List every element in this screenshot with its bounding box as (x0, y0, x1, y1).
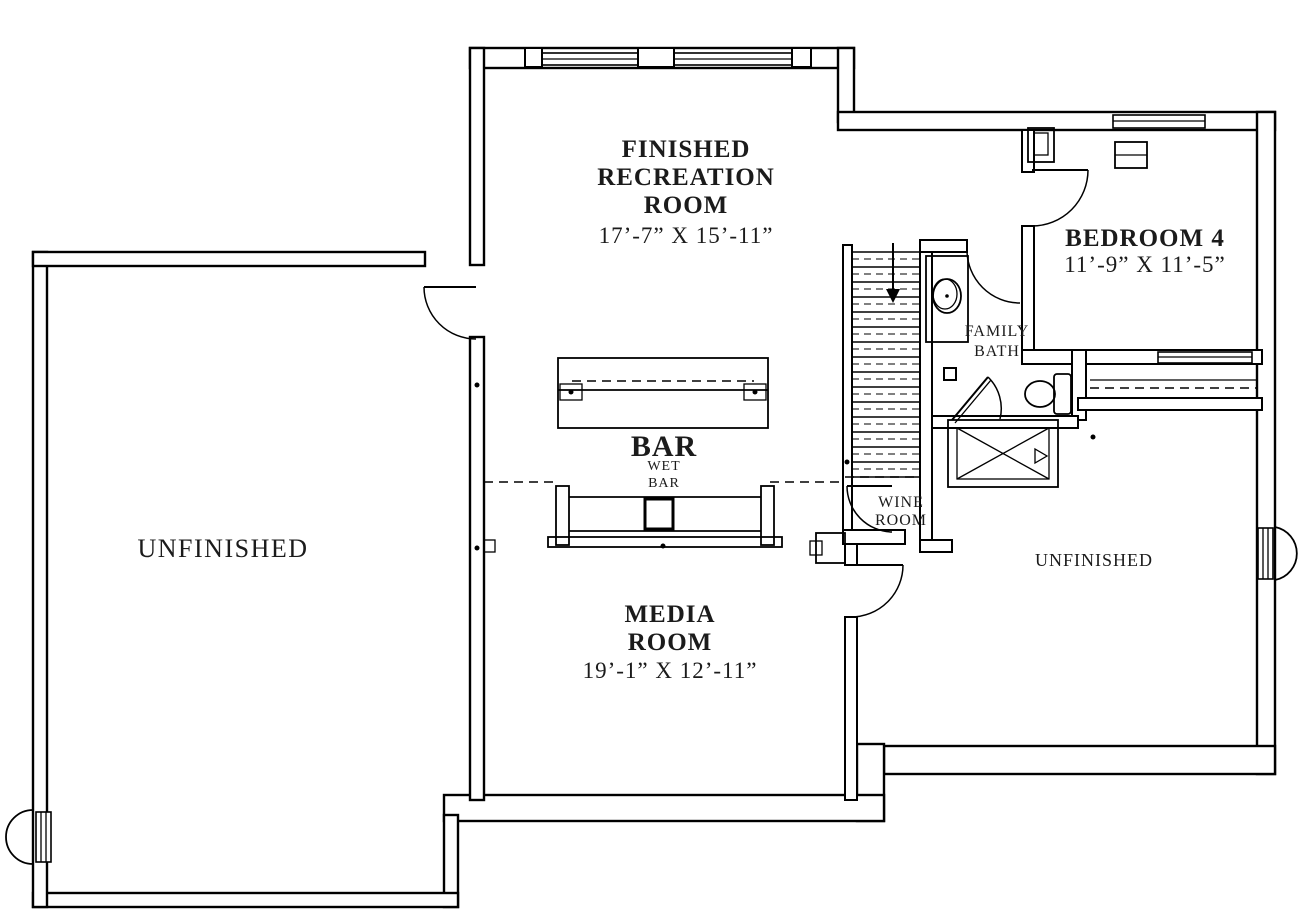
bedroom-bottom-window (1158, 352, 1252, 363)
wall-niche (816, 533, 845, 563)
unfinished-right-label: UNFINISHED (1035, 550, 1153, 570)
door-bath-inner (944, 368, 1001, 423)
door-swing-arc (424, 287, 476, 339)
door-swing-arc (988, 377, 1001, 419)
toilet-bowl (1025, 381, 1055, 407)
bedroom-top-window (1113, 115, 1205, 128)
wall-left-bottom (33, 893, 458, 907)
stair-down-arrow-icon (886, 289, 900, 303)
left-egress-window (6, 810, 51, 864)
recreation-room-label-line3: ROOM (644, 192, 729, 219)
recreation-room-label-line1: FINISHED (622, 136, 751, 163)
egress-window-left (36, 812, 51, 862)
wet-bar-front-counter (548, 486, 782, 549)
bedroom4-label: BEDROOM 4 (1065, 225, 1225, 252)
bar-post-dot-right (753, 390, 758, 395)
unfinished-left-label: UNFINISHED (138, 534, 309, 563)
wet-bar-back-counter (558, 358, 768, 428)
door-family-bath (967, 250, 1020, 303)
media-room-label-line1: MEDIA (624, 601, 715, 628)
family-bath-label-line1: FAMILY (965, 323, 1030, 340)
door-media-room (851, 565, 903, 617)
outlet-dot (475, 546, 480, 551)
media-room-dimensions: 19’-1” X 12’-11” (583, 658, 758, 683)
bar-base-dot (661, 544, 666, 549)
door-unfinished-to-rec (424, 287, 476, 339)
door-swing-arc (967, 250, 1020, 303)
egress-well-right (1275, 527, 1297, 580)
window-post-right (792, 48, 811, 67)
wet-bar-label-line2: BAR (648, 476, 680, 491)
outlet-dots (475, 383, 1096, 551)
wall-bath-top (920, 240, 967, 252)
media-room-label-line2: ROOM (628, 629, 713, 656)
door-swing-arc (1032, 170, 1088, 226)
recreation-room-dimensions: 17’-7” X 15’-11” (599, 223, 774, 248)
wall-closet-bottom (1078, 398, 1262, 410)
stair-treads (852, 252, 920, 477)
wall-jamb-bump (484, 540, 495, 552)
chimney-box-inner (1034, 133, 1048, 155)
x-box-area (948, 420, 1058, 487)
stair-treads-dashed (852, 259, 920, 469)
stairs (852, 243, 920, 477)
bath-sink-drain (945, 294, 949, 298)
wall-media-bottom (444, 795, 884, 821)
bar-counter-outline (558, 358, 768, 428)
door-jamb (944, 368, 956, 380)
bar-post-dot-left (569, 390, 574, 395)
egress-well-left (6, 810, 33, 864)
wall-top-right-section (838, 112, 1275, 130)
bedroom4-dimensions: 11’-9” X 11’-5” (1064, 252, 1225, 277)
wall-left (33, 252, 47, 907)
wall-left-top (33, 252, 425, 266)
outlet-dot (1091, 435, 1096, 440)
x-box-triangle-icon (1035, 449, 1047, 463)
wine-room-label-line1: WINE (878, 494, 924, 511)
door-leaf (952, 377, 988, 420)
toilet-tank (1054, 374, 1071, 414)
wall-bottom-right (884, 746, 1275, 774)
window-post-center (638, 48, 674, 67)
wall-media-right-upper (845, 544, 857, 565)
fixtures (475, 128, 1259, 551)
bedroom-closet (1090, 380, 1258, 388)
wall-stairs-left-rail (843, 245, 852, 544)
wall-rec-left-upper (470, 48, 484, 265)
wall-wine-bottom-right (920, 540, 952, 552)
window-post-left (525, 48, 542, 67)
room-labels: FINISHED RECREATION ROOM 17’-7” X 15’-11… (138, 136, 1226, 683)
wall-media-right-lower (845, 617, 857, 800)
wall-boxes (1028, 128, 1147, 168)
family-bath-label-line2: BATH (974, 343, 1020, 360)
bath-sink-inner (933, 279, 957, 309)
egress-window-right (1258, 528, 1273, 579)
recreation-room-label-line2: RECREATION (597, 164, 775, 191)
floor-plan-drawing: FINISHED RECREATION ROOM 17’-7” X 15’-11… (0, 0, 1310, 924)
door-bedroom (1032, 170, 1088, 226)
toilet (1025, 374, 1071, 414)
outlet-dot (845, 460, 850, 465)
wall-finished-left (470, 337, 484, 800)
floor-plan-page: FINISHED RECREATION ROOM 17’-7” X 15’-11… (0, 0, 1310, 924)
wine-room-label-line2: ROOM (875, 512, 927, 529)
right-egress-window (1258, 527, 1297, 580)
door-swing-arc (851, 565, 903, 617)
outlet-dot (475, 383, 480, 388)
bar-sink (645, 499, 673, 529)
wet-bar-label-line1: WET (647, 459, 680, 474)
wall-right (1257, 112, 1275, 774)
wall-wine-bottom (843, 530, 905, 544)
